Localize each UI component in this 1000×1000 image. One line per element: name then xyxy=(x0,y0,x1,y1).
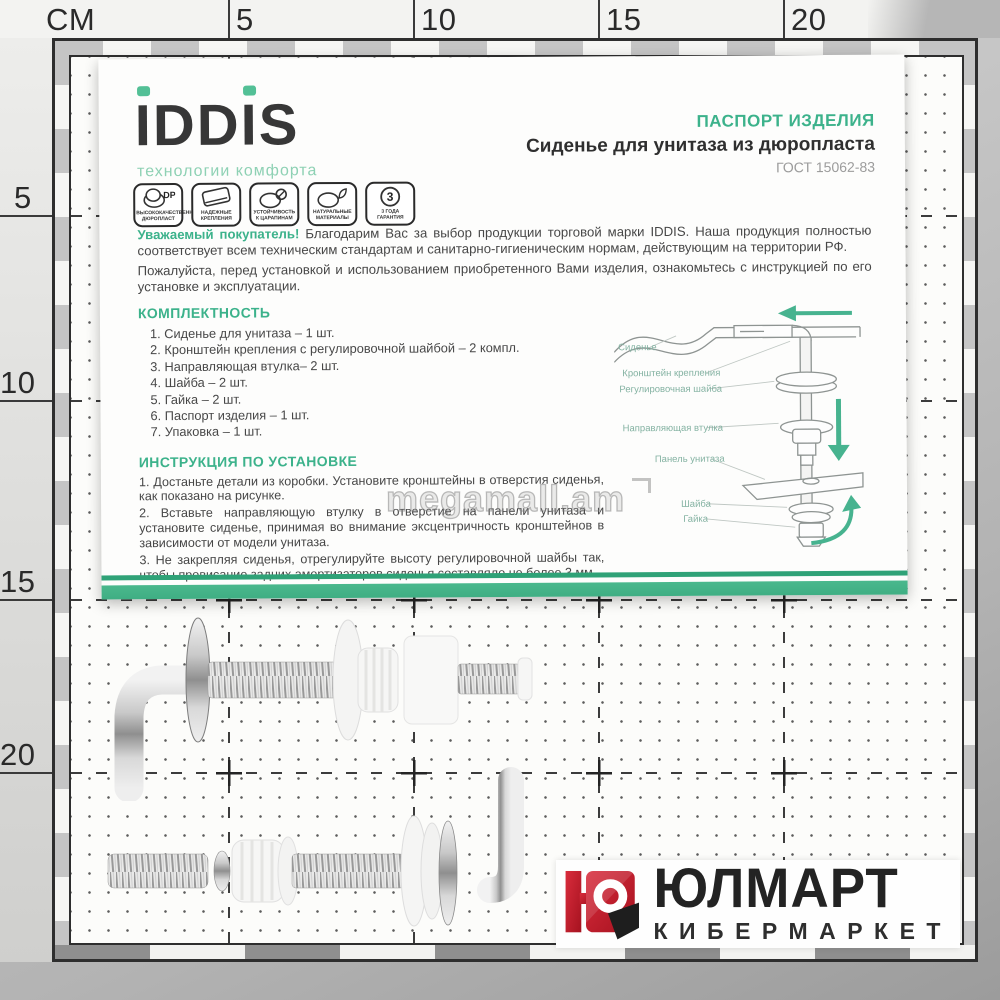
bolt-tip xyxy=(214,851,230,891)
seat-duroplast-icon: DP высококачественный дюропласт xyxy=(133,183,183,227)
diagram-label-washer: Шайба xyxy=(681,499,712,510)
greeting-text-2: Пожалуйста, перед установкой и использов… xyxy=(138,258,872,295)
logo-letter: D xyxy=(153,97,197,155)
passport-left-column: КОМПЛЕКТНОСТЬ 1. Сиденье для унитаза – 1… xyxy=(138,302,605,584)
scale-stripe-band xyxy=(55,41,69,945)
seat-fastening-icon: надежные крепления xyxy=(191,183,241,227)
retailer-name: ЮЛМАРТ xyxy=(653,863,952,916)
diagram-label-guide-sleeve: Направляющая втулка xyxy=(623,423,724,435)
ruler-label-5: 5 xyxy=(14,180,32,216)
logo-letter: S xyxy=(259,96,300,154)
diagram-label-seat: Сиденье xyxy=(618,342,657,353)
mounting-hardware-set-2 xyxy=(92,752,567,952)
eco-materials-icon: натуральные материалы xyxy=(307,182,357,226)
metal-washer-disc xyxy=(439,821,457,925)
retailer-text: ЮЛМАРТ КИБЕРМАРКЕТ xyxy=(653,863,952,944)
product-name: Сиденье для унитаза из дюропласта xyxy=(526,134,875,158)
logo-letter: D xyxy=(197,97,241,155)
passport-title: ПАСПОРТ ИЗДЕЛИЯ xyxy=(526,111,875,133)
threaded-bolt xyxy=(292,854,404,888)
greeting-paragraph: Уважаемый покупатель! Благодарим Вас за … xyxy=(137,223,871,299)
grid-plus-mark xyxy=(586,760,612,786)
threaded-bolt xyxy=(108,854,208,888)
diagram-label-nut: Гайка xyxy=(683,514,709,525)
completeness-item: 7. Упаковка – 1 шт. xyxy=(139,422,604,441)
iddis-logo: I D D I S xyxy=(135,96,300,155)
ruler-label-15: 15 xyxy=(0,564,35,600)
retailer-tagline: КИБЕРМАРКЕТ xyxy=(653,918,952,945)
ruler-tick xyxy=(228,0,230,38)
seat-glyph: DP xyxy=(141,187,175,211)
diagram-label-adjusting-washer: Регулировочная шайба xyxy=(619,384,722,396)
ruler-top xyxy=(0,0,1000,38)
seat-glyph xyxy=(257,187,291,211)
completeness-title: КОМПЛЕКТНОСТЬ xyxy=(138,302,603,321)
logo-letter: I xyxy=(135,97,153,155)
retailer-logo-panel: ЮЛМАРТ КИБЕРМАРКЕТ xyxy=(556,860,960,948)
ruler-tick xyxy=(413,0,415,38)
ruler-tick xyxy=(598,0,600,38)
ruler-label-10: 10 xyxy=(0,365,35,401)
logo-green-dot xyxy=(243,86,256,96)
white-sleeve-block xyxy=(404,636,458,724)
diagram-label-bracket: Кронштейн крепления xyxy=(622,368,720,380)
threaded-bolt-tip xyxy=(458,664,520,694)
svg-text:DP: DP xyxy=(163,190,175,200)
ruler-unit-label: CM xyxy=(46,2,95,38)
metal-washer-disc xyxy=(186,618,210,742)
ruler-label-5: 5 xyxy=(236,2,254,38)
ruler-label-10: 10 xyxy=(421,2,456,38)
watermark: megamall.am xyxy=(386,478,651,520)
scratch-resistant-icon: устойчивость к царапинам xyxy=(249,182,299,226)
diagram-label-toilet-panel: Панель унитаза xyxy=(655,454,726,465)
white-gear-nut xyxy=(232,840,284,902)
passport-header: ПАСПОРТ ИЗДЕЛИЯ Сиденье для унитаза из д… xyxy=(526,111,875,177)
yulmart-logo-icon xyxy=(564,862,639,946)
seat-glyph xyxy=(315,186,349,210)
l-bracket-vertical xyxy=(490,780,511,890)
white-end-cap xyxy=(518,658,532,700)
watermark-corner-bracket xyxy=(632,478,651,493)
ruler-label-15: 15 xyxy=(606,2,641,38)
background-corner xyxy=(868,0,1000,38)
ruler-label-20: 20 xyxy=(0,737,35,773)
logo-letter: I xyxy=(240,96,258,154)
ruler-tick xyxy=(783,0,785,38)
greeting-lead: Уважаемый покупатель! xyxy=(137,226,299,242)
warranty-glyph: 3 xyxy=(373,186,407,210)
product-photo-scene: { "colors":{"accent_green":"#3cb28b","ba… xyxy=(0,0,1000,1000)
grid-plus-mark xyxy=(771,760,797,786)
ruler-label-20: 20 xyxy=(791,2,826,38)
ruler-left xyxy=(0,38,52,962)
svg-text:3: 3 xyxy=(387,190,394,204)
white-gear-nut xyxy=(358,648,398,712)
threaded-bolt xyxy=(208,662,346,698)
seat-glyph xyxy=(199,187,233,211)
feature-badges: DP высококачественный дюропласт надежные… xyxy=(133,182,415,228)
warranty-icon: 3 3 года гарантия xyxy=(365,182,415,226)
assembly-diagram: Сиденье Кронштейн крепления Регулировочн… xyxy=(614,299,874,559)
scale-stripe-band xyxy=(55,41,975,55)
logo-green-dot xyxy=(137,86,150,96)
brand-tagline: технологии комфорта xyxy=(137,162,317,181)
instructions-title: ИНСТРУКЦИЯ ПО УСТАНОВКЕ xyxy=(139,451,604,470)
gost-standard: ГОСТ 15062-83 xyxy=(526,159,875,177)
